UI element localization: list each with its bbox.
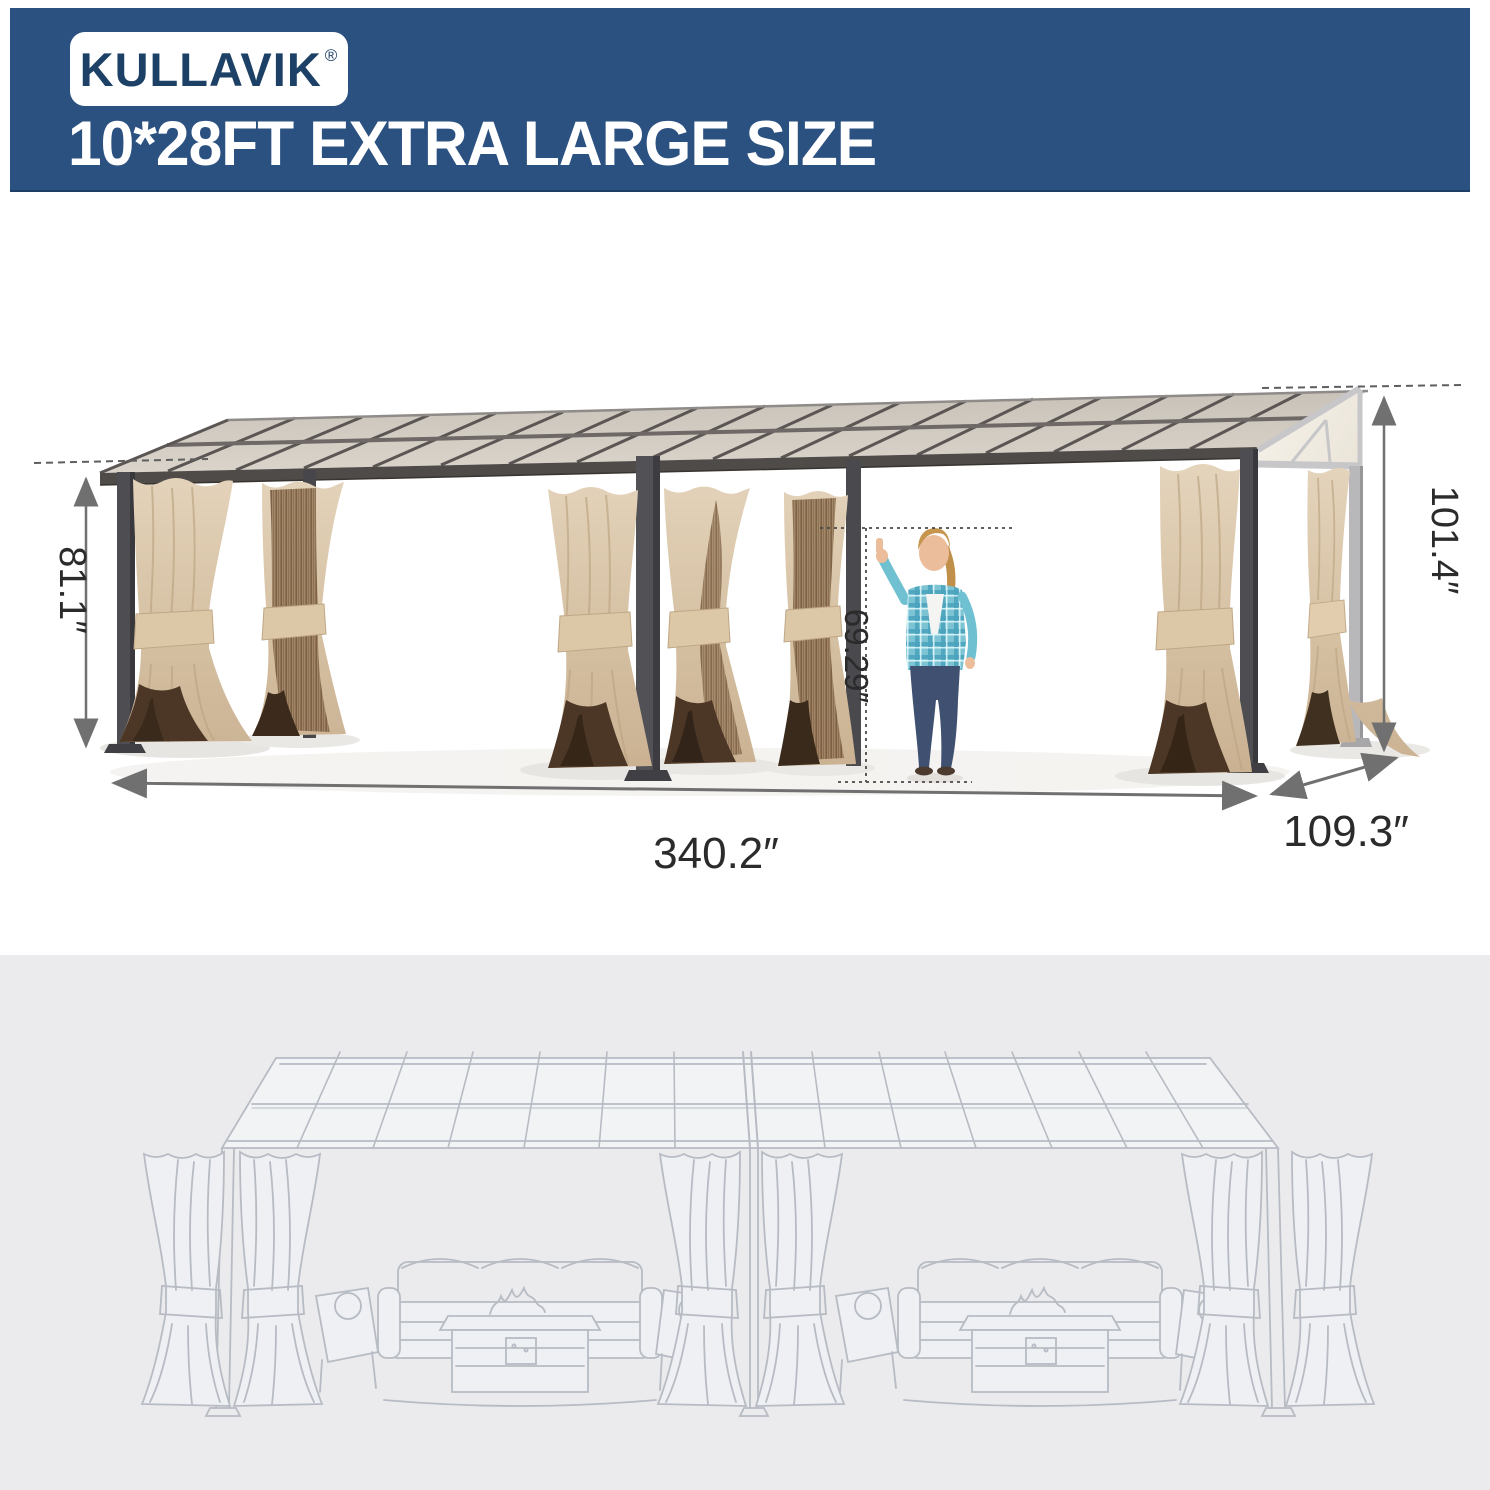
head <box>919 535 949 571</box>
sketch-section <box>0 955 1490 1490</box>
pergola-dimension-illustration: 81.1″ 101.4″ 69.29″ 340.2″ 109.3″ <box>0 0 1490 955</box>
back-height-label: 101.4″ <box>1423 486 1465 595</box>
sketch-roof <box>222 1052 1278 1148</box>
length-label: 340.2″ <box>653 829 779 878</box>
front-height-label: 81.1″ <box>51 546 93 633</box>
person-height-label: 69.29″ <box>838 609 875 704</box>
sketch-background <box>0 955 1490 1490</box>
depth-label: 109.3″ <box>1283 807 1409 856</box>
page: { "banner": { "brand": "KULLAVIK", "regi… <box>0 0 1490 1490</box>
